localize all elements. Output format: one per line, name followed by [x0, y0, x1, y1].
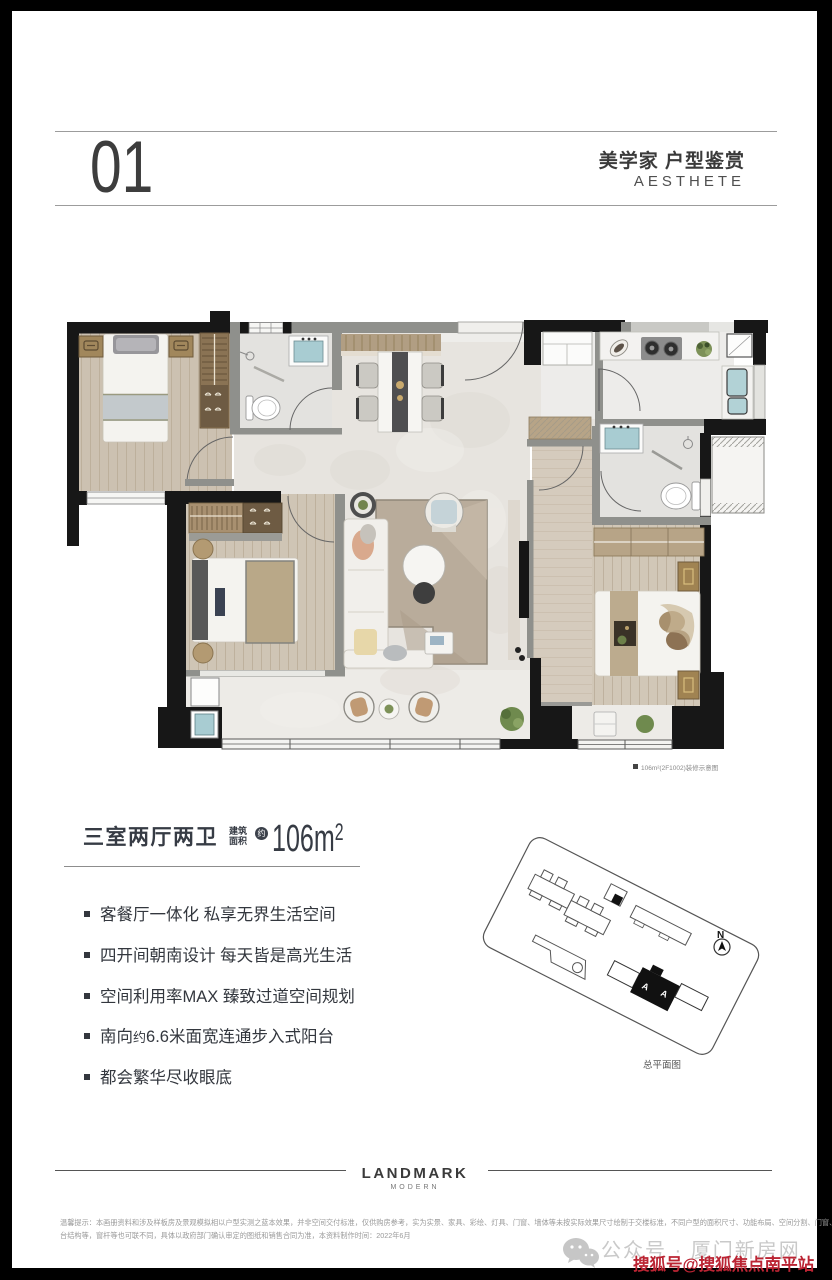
svg-text:总平面图: 总平面图 [643, 1059, 681, 1071]
svg-text:N: N [717, 930, 724, 941]
svg-text:106m²(2F1002)装修示意图: 106m²(2F1002)装修示意图 [641, 763, 718, 772]
